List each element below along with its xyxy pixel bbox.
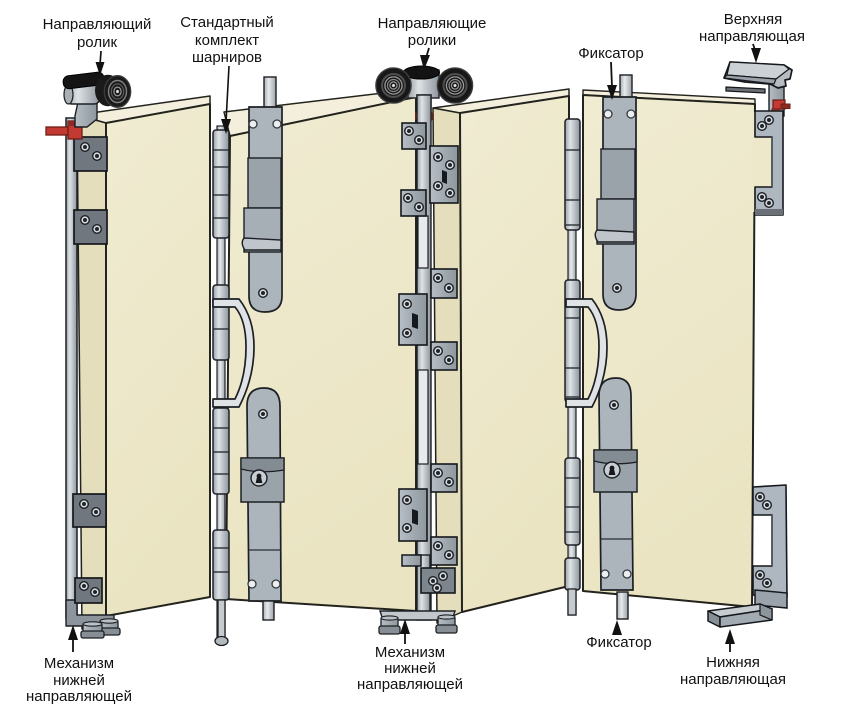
svg-text:Нижняя: Нижняя (706, 654, 760, 671)
svg-text:Фиксатор: Фиксатор (578, 45, 643, 62)
svg-text:комплект: комплект (195, 32, 259, 49)
svg-text:ролик: ролик (77, 34, 117, 51)
svg-text:направляющей: направляющей (26, 688, 132, 705)
svg-text:нижней: нижней (53, 672, 105, 689)
svg-text:ролики: ролики (408, 32, 456, 49)
svg-text:Стандартный: Стандартный (180, 14, 274, 31)
svg-text:Механизм: Механизм (44, 655, 114, 672)
svg-text:Фиксатор: Фиксатор (586, 634, 651, 651)
svg-text:Верхняя: Верхняя (724, 11, 783, 28)
svg-text:направляющая: направляющая (680, 671, 786, 688)
svg-text:Механизм: Механизм (375, 644, 445, 661)
svg-text:шарниров: шарниров (192, 49, 262, 66)
svg-text:направляющая: направляющая (699, 28, 805, 45)
svg-text:направляющей: направляющей (357, 676, 463, 693)
svg-text:Направляющий: Направляющий (43, 16, 152, 33)
svg-text:Направляющие: Направляющие (378, 15, 487, 32)
svg-text:нижней: нижней (384, 660, 436, 677)
